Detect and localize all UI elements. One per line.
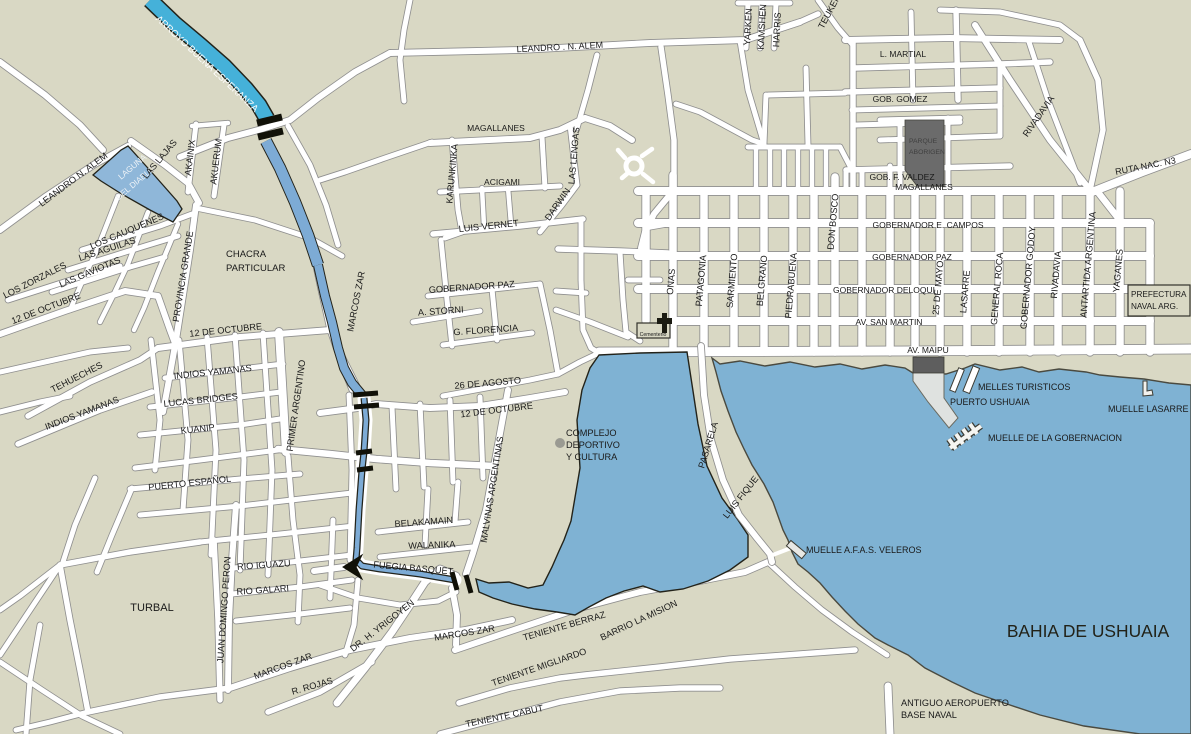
svg-text:BAHIA DE USHUAIA: BAHIA DE USHUAIA xyxy=(1007,621,1170,641)
svg-text:MUELLE DE LA GOBERNACION: MUELLE DE LA GOBERNACION xyxy=(988,433,1122,443)
svg-text:DEPORTIVO: DEPORTIVO xyxy=(566,440,620,450)
svg-text:GOB. GOMEZ: GOB. GOMEZ xyxy=(873,94,928,104)
svg-text:ABORIGEN: ABORIGEN xyxy=(909,149,945,156)
svg-text:BASE NAVAL: BASE NAVAL xyxy=(901,710,957,720)
svg-text:AV. SAN MARTIN: AV. SAN MARTIN xyxy=(856,317,923,327)
svg-text:NAVAL ARG.: NAVAL ARG. xyxy=(1131,302,1178,311)
svg-text:ANTIGUO AEROPUERTO: ANTIGUO AEROPUERTO xyxy=(901,698,1009,708)
svg-text:COMPLEJO: COMPLEJO xyxy=(566,428,617,438)
svg-text:CHACRA: CHACRA xyxy=(226,249,267,260)
svg-text:Y CULTURA: Y CULTURA xyxy=(566,452,618,462)
svg-text:GOBERNADOR E. CAMPOS: GOBERNADOR E. CAMPOS xyxy=(873,220,984,230)
svg-text:HARRIS: HARRIS xyxy=(771,12,783,47)
svg-text:PARTICULAR: PARTICULAR xyxy=(226,263,285,274)
svg-text:MUELLE LASARRE: MUELLE LASARRE xyxy=(1108,404,1189,414)
svg-text:AV. MAIPU: AV. MAIPU xyxy=(907,345,949,355)
svg-text:PARQUE: PARQUE xyxy=(909,138,938,145)
svg-text:GOBERNADOR PAZ: GOBERNADOR PAZ xyxy=(872,252,952,262)
svg-text:GOB. F. VALDEZ: GOB. F. VALDEZ xyxy=(869,172,934,182)
svg-text:TURBAL: TURBAL xyxy=(130,602,173,614)
svg-text:GOBERNADOR DELOQUI: GOBERNADOR DELOQUI xyxy=(833,285,935,295)
svg-text:ACIGAMI: ACIGAMI xyxy=(484,177,520,187)
svg-text:PREFECTURA: PREFECTURA xyxy=(1131,290,1187,299)
svg-text:MELLES TURISTICOS: MELLES TURISTICOS xyxy=(978,382,1070,392)
svg-text:MAGALLANES: MAGALLANES xyxy=(895,182,953,192)
svg-text:Cementerio: Cementerio xyxy=(640,332,667,338)
svg-text:L. MARTIAL: L. MARTIAL xyxy=(880,49,926,59)
svg-text:MUELLE A.F.A.S. VELEROS: MUELLE A.F.A.S. VELEROS xyxy=(806,545,922,555)
svg-text:PUERTO USHUAIA: PUERTO USHUAIA xyxy=(950,397,1030,407)
svg-text:YARKEN: YARKEN xyxy=(742,8,754,46)
svg-text:WALANIKA: WALANIKA xyxy=(408,539,456,551)
svg-text:MAGALLANES: MAGALLANES xyxy=(467,123,525,133)
